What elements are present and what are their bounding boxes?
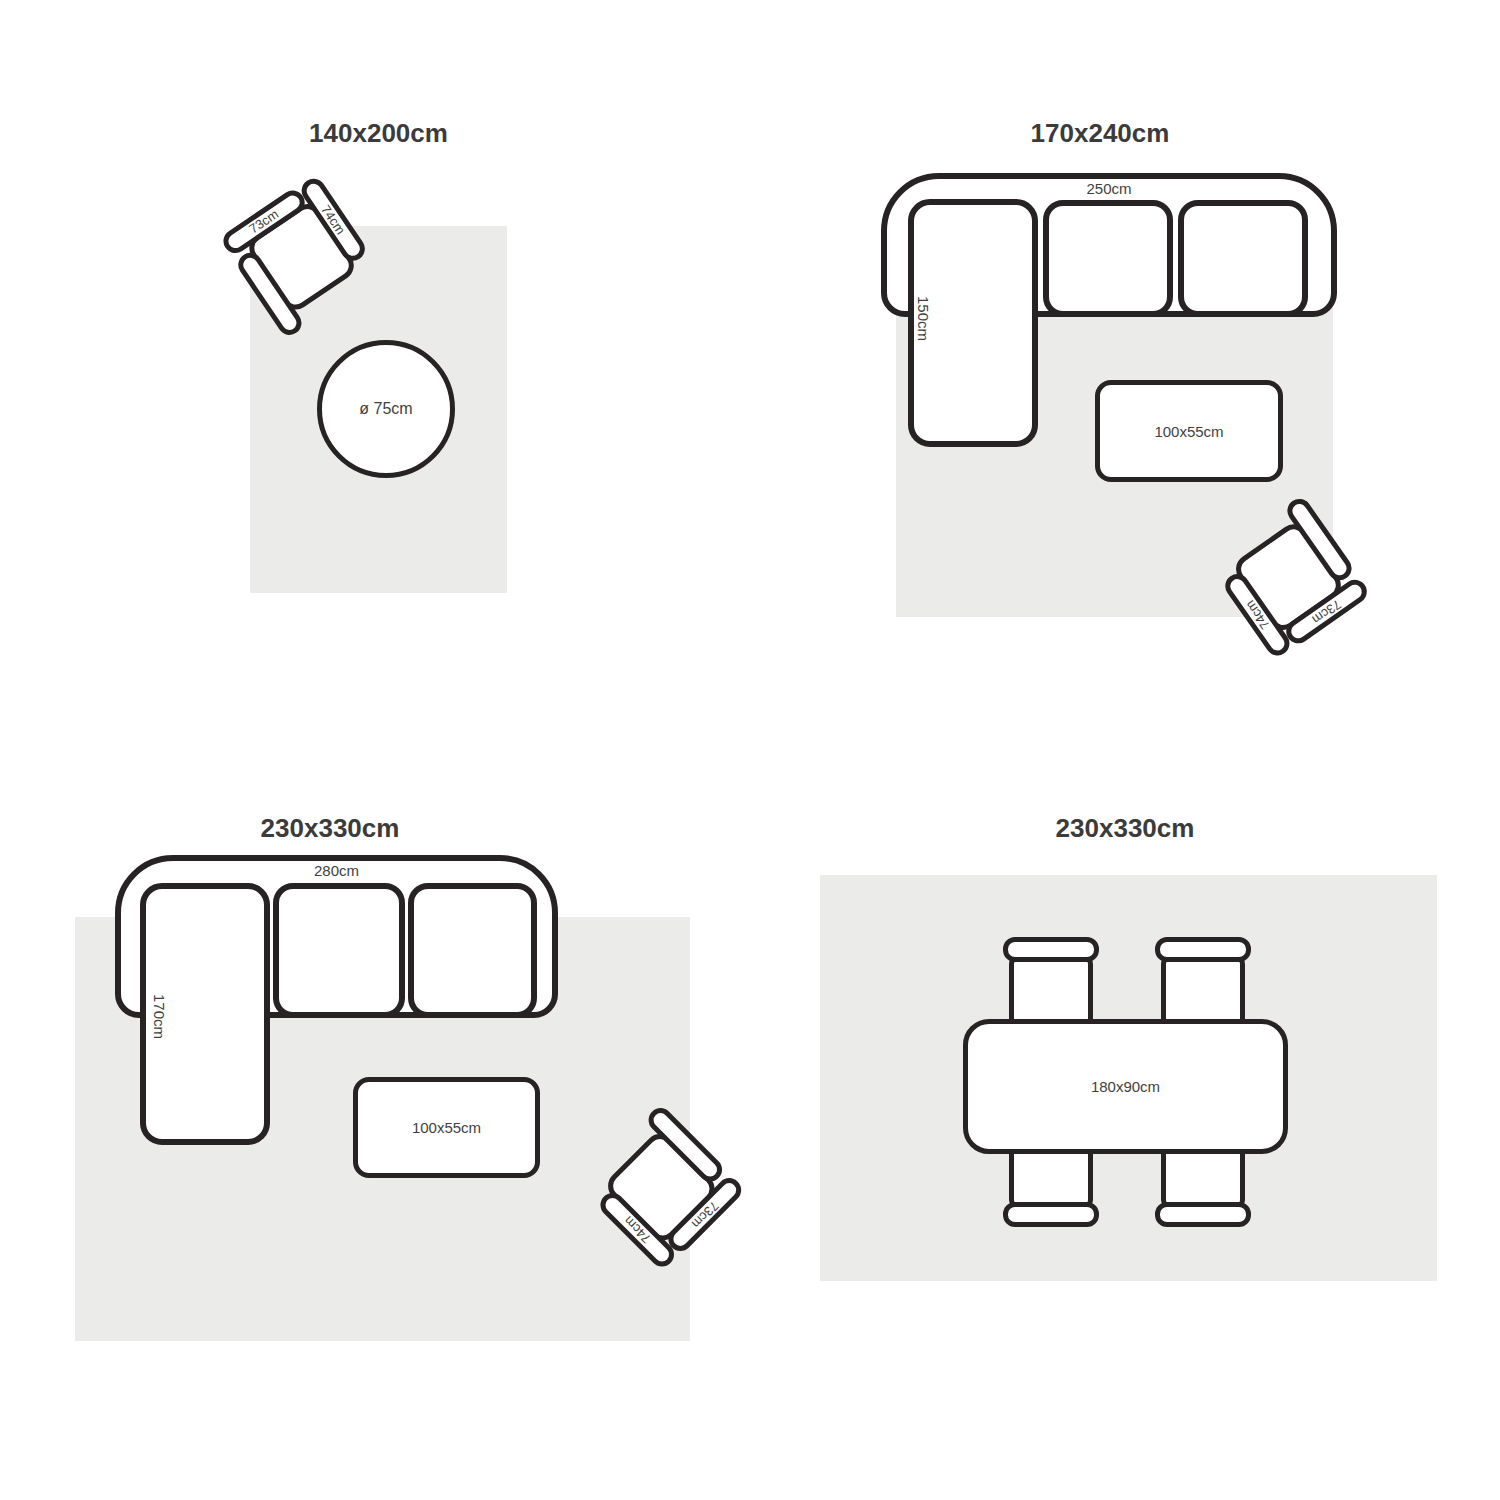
dining-chair-backrest bbox=[1003, 1202, 1099, 1227]
round-side-table: ø 75cm bbox=[317, 340, 455, 478]
sofa-cushion bbox=[1178, 200, 1308, 317]
dining-table: 180x90cm bbox=[963, 1019, 1288, 1154]
panel3-title: 230x330cm bbox=[200, 813, 460, 844]
sofa-cushion bbox=[273, 883, 405, 1018]
dining-chair-backrest bbox=[1003, 937, 1099, 962]
sofa-cushion bbox=[408, 883, 537, 1018]
panel4-title: 230x330cm bbox=[995, 813, 1255, 844]
sofa-chaise-dimension: 170cm bbox=[151, 994, 168, 1066]
round-table-dimension: ø 75cm bbox=[359, 400, 412, 418]
panel1-title: 140x200cm bbox=[250, 118, 507, 149]
sofa-width-dimension: 280cm bbox=[115, 862, 558, 879]
panel2-title: 170x240cm bbox=[970, 118, 1230, 149]
coffee-table-dimension: 100x55cm bbox=[1154, 423, 1223, 440]
dining-chair-backrest bbox=[1155, 937, 1251, 962]
sofa-width-dimension: 250cm bbox=[881, 180, 1337, 197]
dining-chair bbox=[1003, 937, 1099, 1032]
sofa-chaise-dimension: 150cm bbox=[915, 296, 932, 368]
sofa-cushion bbox=[1043, 200, 1173, 317]
coffee-table: 100x55cm bbox=[1095, 380, 1283, 482]
rug-size-guide: 140x200cm 73cm 74cm ø 75cm 170x240cm 100… bbox=[0, 0, 1500, 1500]
coffee-table: 100x55cm bbox=[353, 1077, 540, 1178]
dining-table-dimension: 180x90cm bbox=[1091, 1078, 1160, 1095]
dining-chair-backrest bbox=[1155, 1202, 1251, 1227]
coffee-table-dimension: 100x55cm bbox=[412, 1119, 481, 1136]
dining-chair bbox=[1155, 937, 1251, 1032]
